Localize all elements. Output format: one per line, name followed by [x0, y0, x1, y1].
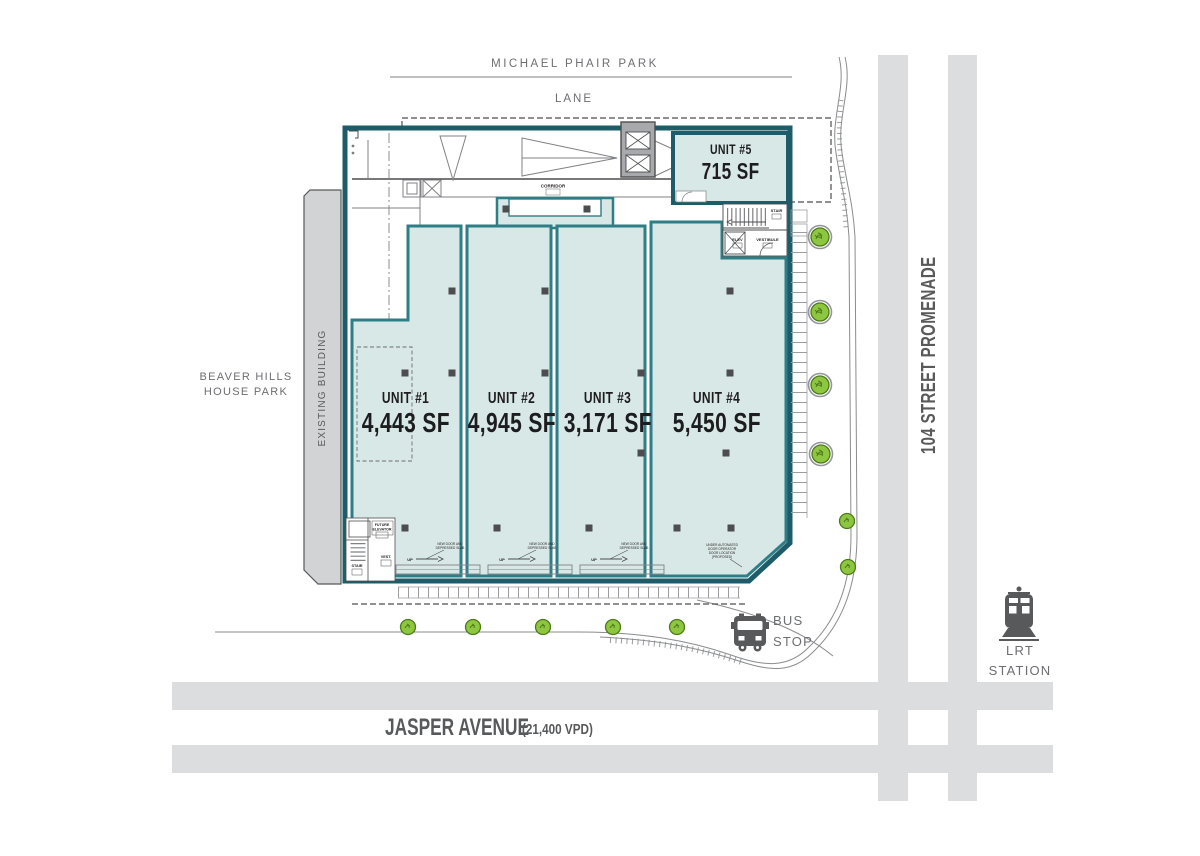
michael-phair-park-label: MICHAEL PHAIR PARK — [455, 58, 695, 70]
stair-top-label: STAIR — [771, 208, 783, 213]
lane-label: LANE — [534, 93, 614, 105]
unit-5-label: UNIT #5 715 SF — [641, 141, 821, 184]
existing-building-label: EXISTING BUILDING — [315, 288, 329, 488]
future-elevator-label-2: ELEVATOR — [373, 528, 392, 532]
jasper-traffic-label: (21,400 VPD) — [522, 721, 613, 739]
svg-text:DEPRESSED SLAB: DEPRESSED SLAB — [528, 546, 557, 550]
svg-text:DEPRESSED SLAB: DEPRESSED SLAB — [620, 546, 649, 550]
future-elevator-label-1: FUTURE — [375, 523, 390, 527]
lrt-icon — [999, 587, 1039, 642]
up-label-2: UP — [499, 557, 505, 562]
bus-stop-label: BUS STOP — [773, 610, 813, 652]
entry-vestibule — [497, 198, 613, 228]
vest-label: VEST. — [381, 555, 392, 559]
site-plan: CORRIDOR STAIR ELEV VESTIBULE FUTURE ELE… — [0, 0, 1200, 856]
stair-bottom-label: STAIR — [351, 564, 362, 568]
promenade-street-label: 104 STREET PROMENADE — [917, 155, 941, 555]
up-label-3: UP — [591, 557, 597, 562]
vestibule-label: VESTIBULE — [756, 237, 779, 242]
unit-4-label: UNIT #4 5,450 SF — [627, 390, 807, 437]
up-label-1: UP — [407, 557, 413, 562]
svg-text:(PROPOSED): (PROPOSED) — [712, 555, 732, 559]
beaver-hills-park-label: BEAVER HILLS HOUSE PARK — [166, 370, 326, 400]
corridor-label: CORRIDOR — [541, 184, 566, 189]
bus-icon — [731, 614, 769, 652]
lrt-station-label: LRT STATION — [984, 641, 1056, 681]
elev-label: ELEV — [732, 237, 743, 242]
svg-text:DEPRESSED SLAB: DEPRESSED SLAB — [436, 546, 465, 550]
